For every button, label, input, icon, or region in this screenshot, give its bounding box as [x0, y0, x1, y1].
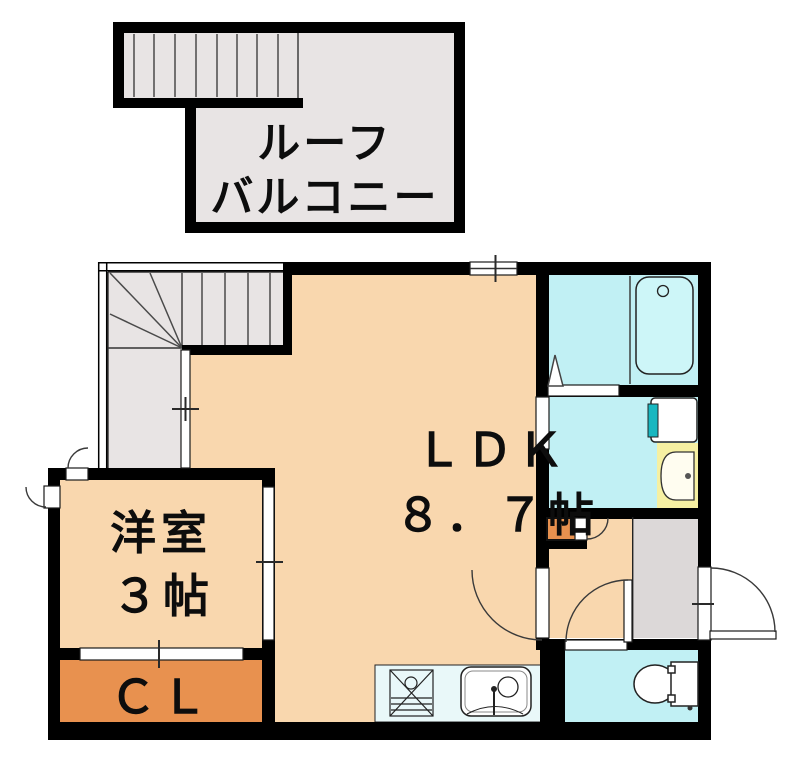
toilet-valve-icon: [688, 706, 693, 711]
washing-machine-tap-icon: [648, 404, 658, 437]
roof-notch-mask: [88, 108, 185, 240]
entrance-door-swing: [711, 568, 775, 632]
western-room-sliding-door: [263, 487, 274, 640]
floorplan-svg: ルーフ バルコニー ＬＤＫ ８．７帖 洋室 ３帖 ＣＬ: [0, 0, 800, 780]
wall-right: [698, 262, 711, 740]
roof-wall-top: [113, 22, 465, 33]
toilet-door-leaf: [624, 580, 632, 642]
western-room-size-label: ３帖: [112, 570, 214, 622]
roof-wall-bottom: [185, 222, 465, 233]
bathtub-drain-icon: [658, 286, 669, 297]
closet-sliding-door: [80, 648, 243, 660]
floorplan-canvas: ルーフ バルコニー ＬＤＫ ８．７帖 洋室 ３帖 ＣＬ: [0, 0, 800, 780]
wall-shoe-box-stub: [547, 540, 587, 549]
casement-window-swing-left: [26, 487, 46, 507]
wall-stair-bottom: [182, 345, 292, 355]
western-room-label: 洋室: [110, 507, 212, 559]
wall-stair-right: [283, 262, 292, 355]
kitchen-sink-icon: [461, 667, 531, 716]
western-room-floor: [60, 480, 262, 648]
roof-wall-right: [454, 22, 465, 233]
wall-bottom: [48, 722, 711, 740]
hallway-door-opening: [536, 568, 549, 638]
western-room-top-window: [66, 468, 88, 480]
roof-balcony-label-line2: バルコニー: [210, 174, 439, 222]
closet-label: ＣＬ: [110, 671, 212, 723]
roof-balcony-label-line1: ルーフ: [257, 120, 392, 168]
basin-faucet-icon: [685, 473, 691, 479]
entrance-genkan-floor: [633, 517, 698, 638]
roof-wall-balcony-left: [185, 108, 196, 233]
ldk-size-label: ８．７帖: [395, 489, 599, 541]
casement-window-swing-top: [68, 448, 88, 468]
roof-wall-stairs-left: [113, 22, 124, 108]
entrance-door-leaf: [710, 631, 776, 639]
stairwell-corridor-floor: [108, 345, 181, 468]
stairwell-upper-floor: [108, 272, 283, 345]
western-room-left-window: [44, 486, 60, 508]
toilet-door-opening: [565, 640, 627, 650]
roof-wall-stairs-bottom: [113, 98, 303, 108]
toilet-hinge-bottom: [668, 695, 675, 702]
ldk-label: ＬＤＫ: [416, 424, 569, 476]
sink-drain-icon: [498, 677, 518, 697]
wall-toilet-left: [540, 643, 565, 731]
toilet-hinge-top: [668, 666, 675, 673]
